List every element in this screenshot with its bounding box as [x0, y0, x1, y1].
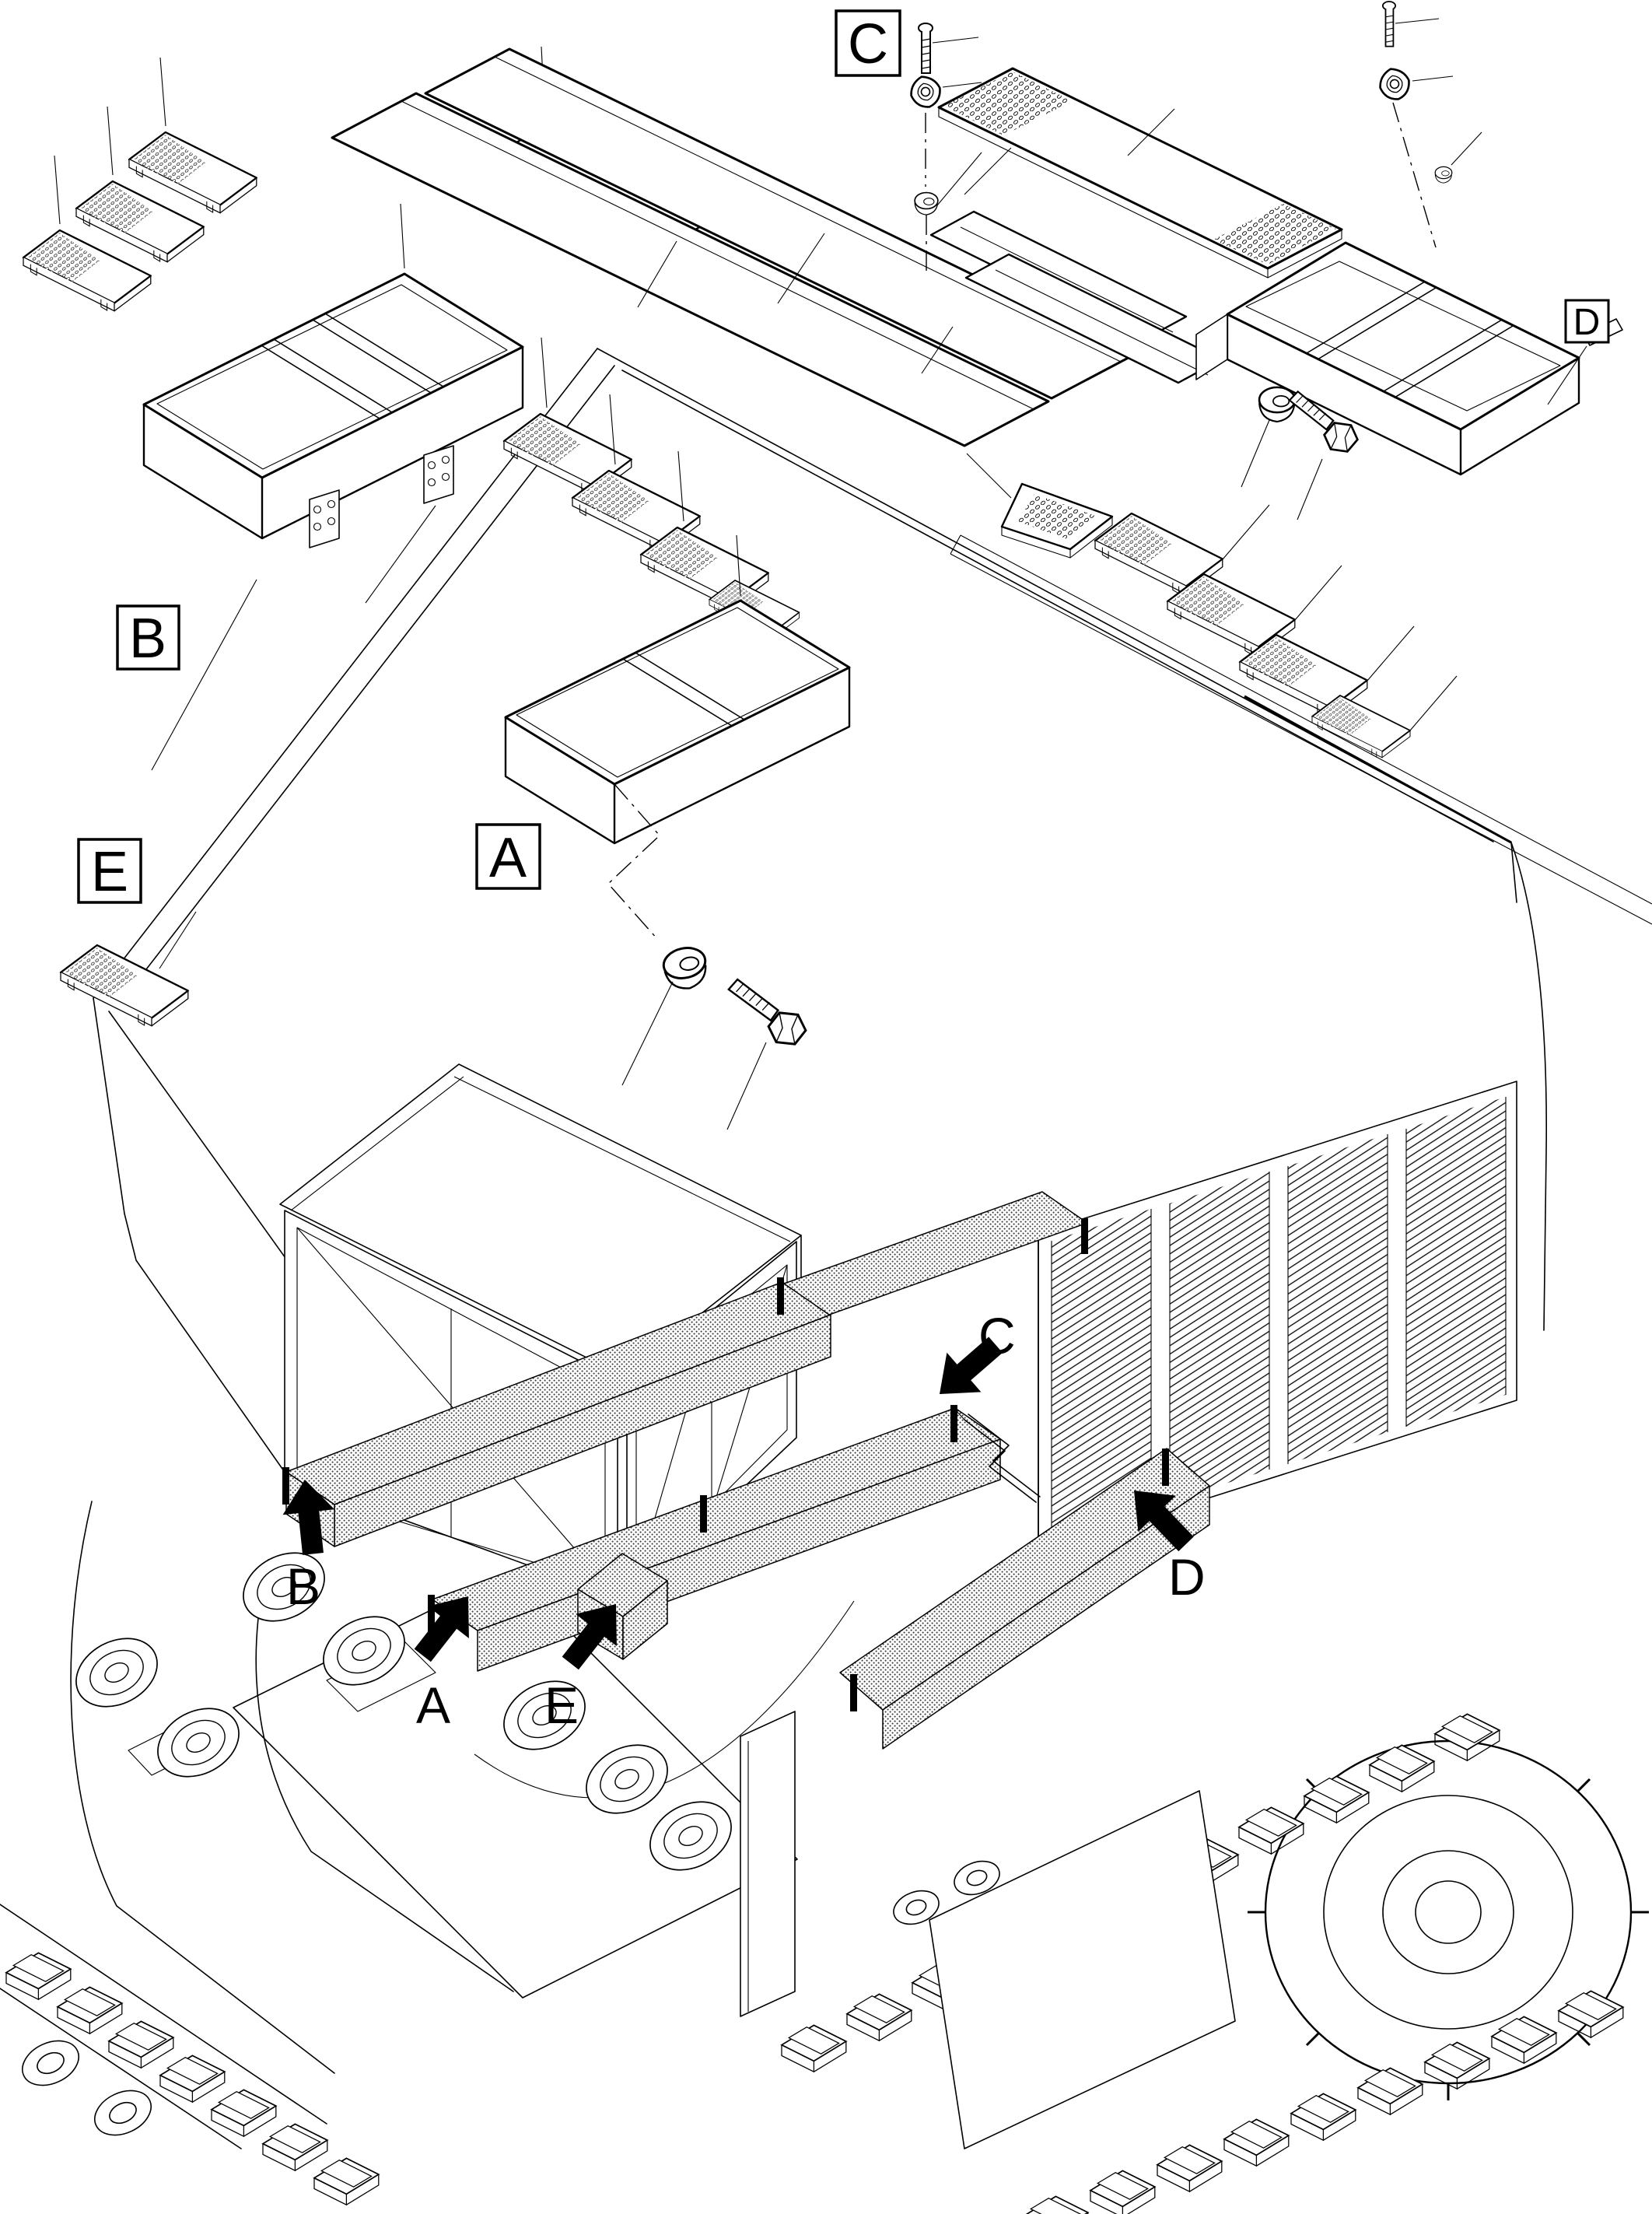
mount-bracket [310, 490, 339, 548]
callout-box-e: E [79, 839, 141, 903]
callout-label-e: E [91, 841, 128, 903]
arrow-label-a: A [416, 1676, 450, 1734]
callout-box-a: A [477, 825, 540, 889]
arrow-label-e: E [544, 1676, 579, 1734]
sprocket-wheel [1248, 1724, 1649, 2100]
mount-bracket [424, 446, 453, 503]
callout-box-d: D [1566, 300, 1608, 343]
arrow-label-c: C [978, 1307, 1016, 1364]
callout-label-d: D [1573, 302, 1601, 343]
callout-box-c: C [836, 11, 900, 75]
arrow-label-d: D [1168, 1548, 1206, 1606]
parts-diagram-page: B A E C D [0, 0, 1652, 2214]
callout-label-b: B [129, 608, 166, 670]
callout-label-c: C [848, 13, 888, 75]
exploded-parts-diagram: B A E C D [0, 0, 1652, 2214]
callout-label-a: A [489, 827, 527, 889]
arrow-label-b: B [286, 1557, 320, 1615]
callout-box-b: B [117, 606, 179, 670]
